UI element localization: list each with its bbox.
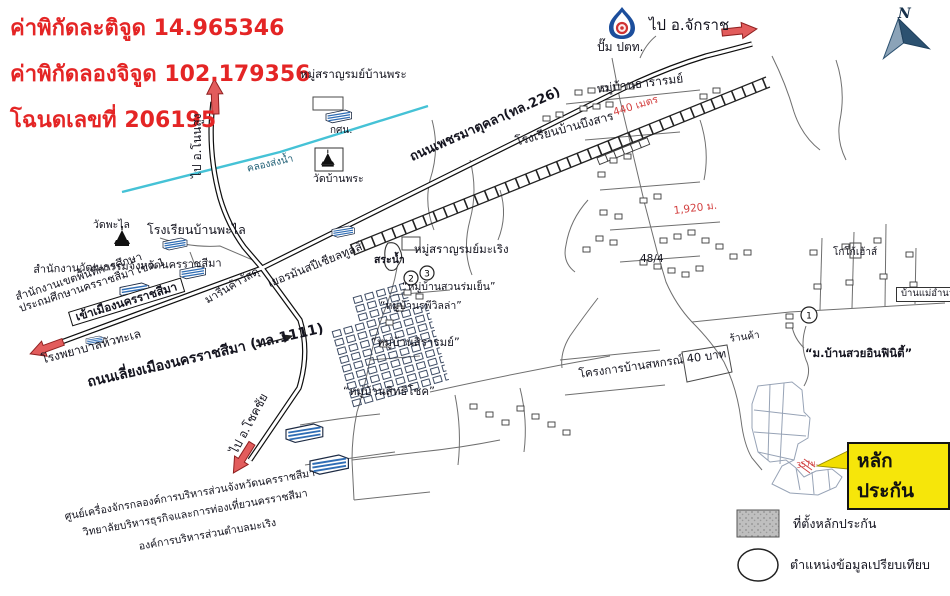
school-phalai-label: โรงเรียนบ้านพะไล	[147, 223, 246, 237]
road-to-nonsung-label: ไป อ.โนนสูง	[191, 113, 204, 178]
ptt-logo-icon	[609, 7, 635, 39]
legend-site-swatch	[737, 510, 779, 537]
koko-house-label: โกโก้เฮ้าส์	[833, 247, 877, 258]
marker-1: 1	[806, 312, 812, 322]
scanned-map-document: 2 3 1 N ค่าพิกัดละติจูด 14.965346 ค่าพิก…	[0, 0, 950, 596]
wat-banphra-label: วัดบ้านพระ	[313, 174, 364, 186]
sirarom-label: “หมู่บ้านสิรารมย์”	[371, 336, 460, 349]
infinity-village-label: “ม.บ้านสวยอินฟินิตี้”	[805, 347, 912, 360]
ptt-station-label: ปั๊ม ปตท.	[597, 41, 643, 54]
comparison-markers: 2 3 1	[404, 266, 817, 323]
legend-compare-symbol	[738, 549, 778, 581]
wat-phalai-label: วัดพะไล	[93, 220, 130, 232]
railway	[350, 77, 770, 255]
legend-site-label: ที่ตั้งหลักประกัน	[793, 517, 876, 531]
house-number-label: 48/4	[640, 254, 664, 266]
ban-mae-amnuay-sign: บ้านแม่อำนวย	[896, 287, 950, 302]
suan-romyen-label: “หมู่บ้านสวนร่มเย็น”	[402, 282, 495, 294]
longitude-line: ค่าพิกัดลองจิจูด 102.179356	[10, 56, 310, 91]
latitude-line: ค่าพิกัดละติจูด 14.965346	[10, 10, 284, 45]
parcel-development	[752, 382, 842, 495]
saran-banphra-label: หมู่สราญรมย์บ้านพระ	[300, 68, 407, 81]
marker-3: 3	[424, 270, 430, 280]
saran-maroeng-label: หมู่สราญรมย์มะเริง	[414, 243, 509, 256]
sitthichok-label: “หมู่บ้านสิทธิโชค”	[343, 385, 435, 398]
collateral-callout-pointer	[817, 451, 848, 469]
pond-label: สระน้ำ	[374, 255, 405, 267]
deed-number-line: โฉนดเลขที่ 206195	[10, 102, 216, 137]
legend-compare-label: ตำแหน่งข้อมูลเปรียบเทียบ	[790, 558, 930, 572]
road-to-chakkarat-label: ไป อ.จักราช	[649, 17, 729, 34]
rapee-villa-label: “หมู่บ้านรพีวิลล่า”	[380, 301, 462, 313]
compass-north-label: N	[897, 6, 912, 22]
nfe-office-label: กศน.	[330, 125, 352, 136]
collateral-callout-box: หลักประกัน	[847, 442, 950, 510]
minor-roads	[160, 36, 945, 500]
